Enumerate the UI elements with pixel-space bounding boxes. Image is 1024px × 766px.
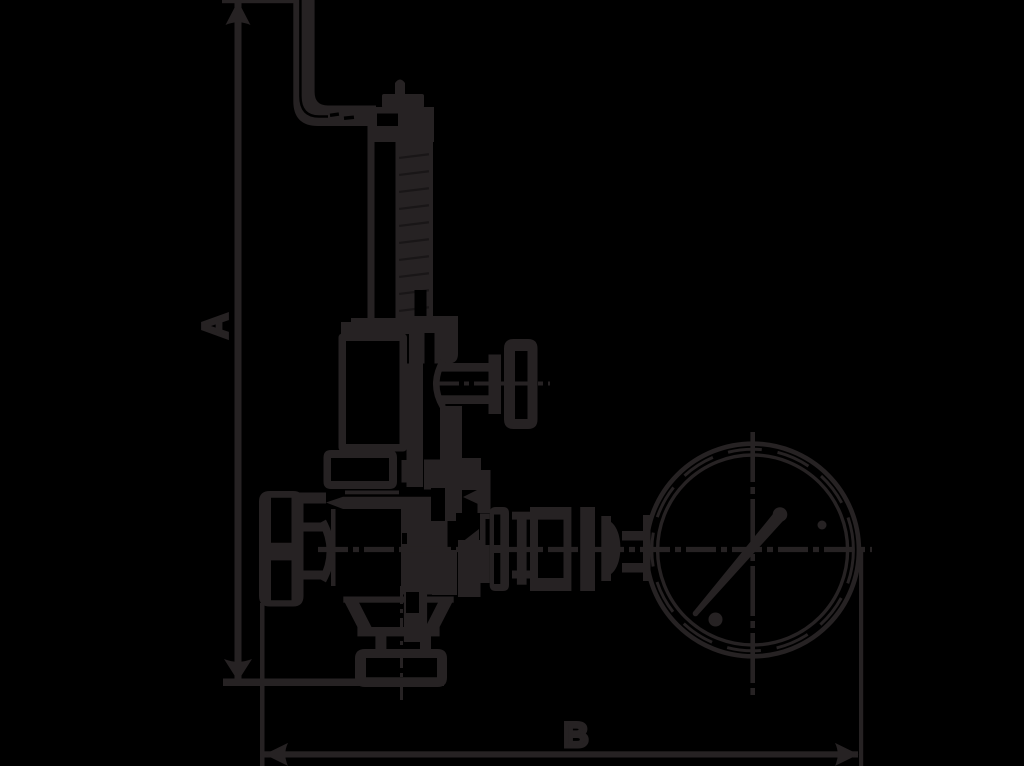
svg-text:B: B [564,717,589,755]
svg-text:A: A [195,313,236,339]
